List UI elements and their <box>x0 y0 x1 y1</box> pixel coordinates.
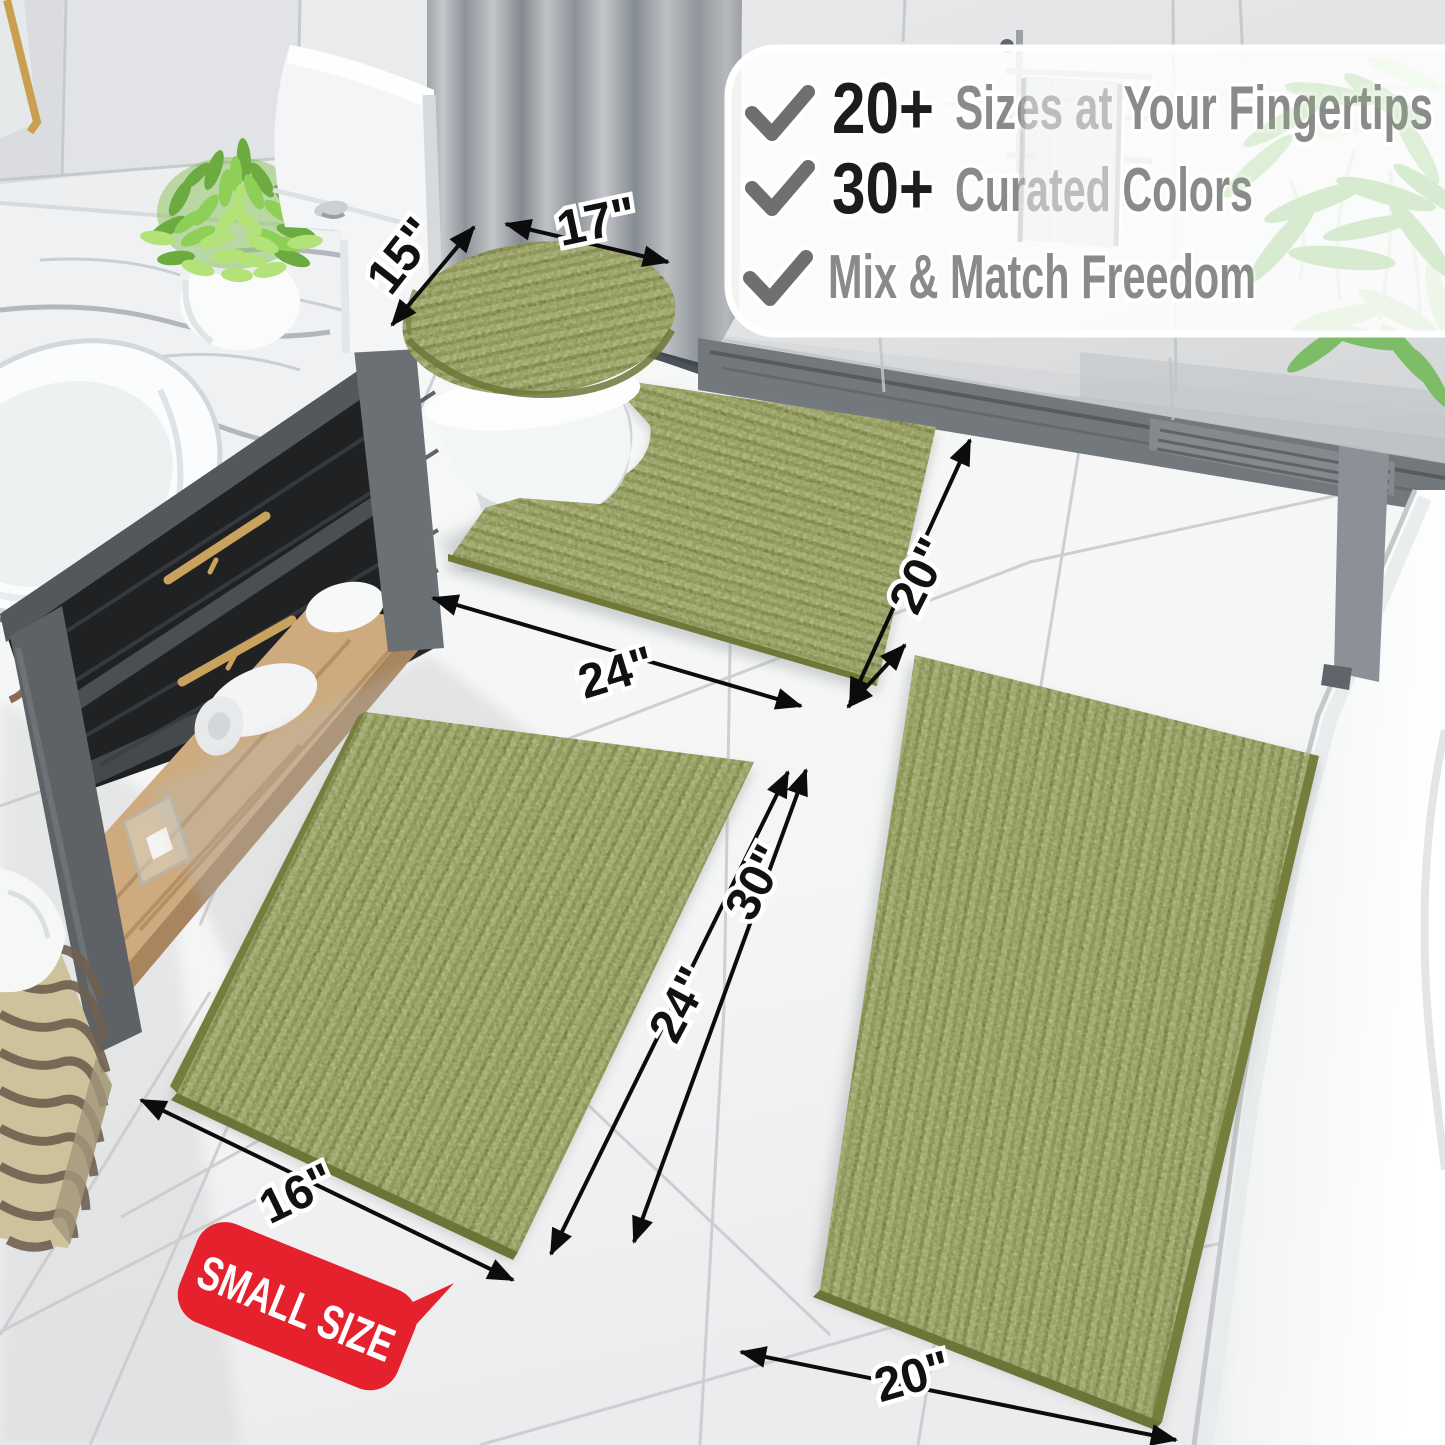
svg-text:20+: 20+ <box>832 69 934 149</box>
svg-text:Mix & Match Freedom: Mix & Match Freedom <box>828 243 1256 312</box>
svg-text:30+: 30+ <box>832 149 934 229</box>
